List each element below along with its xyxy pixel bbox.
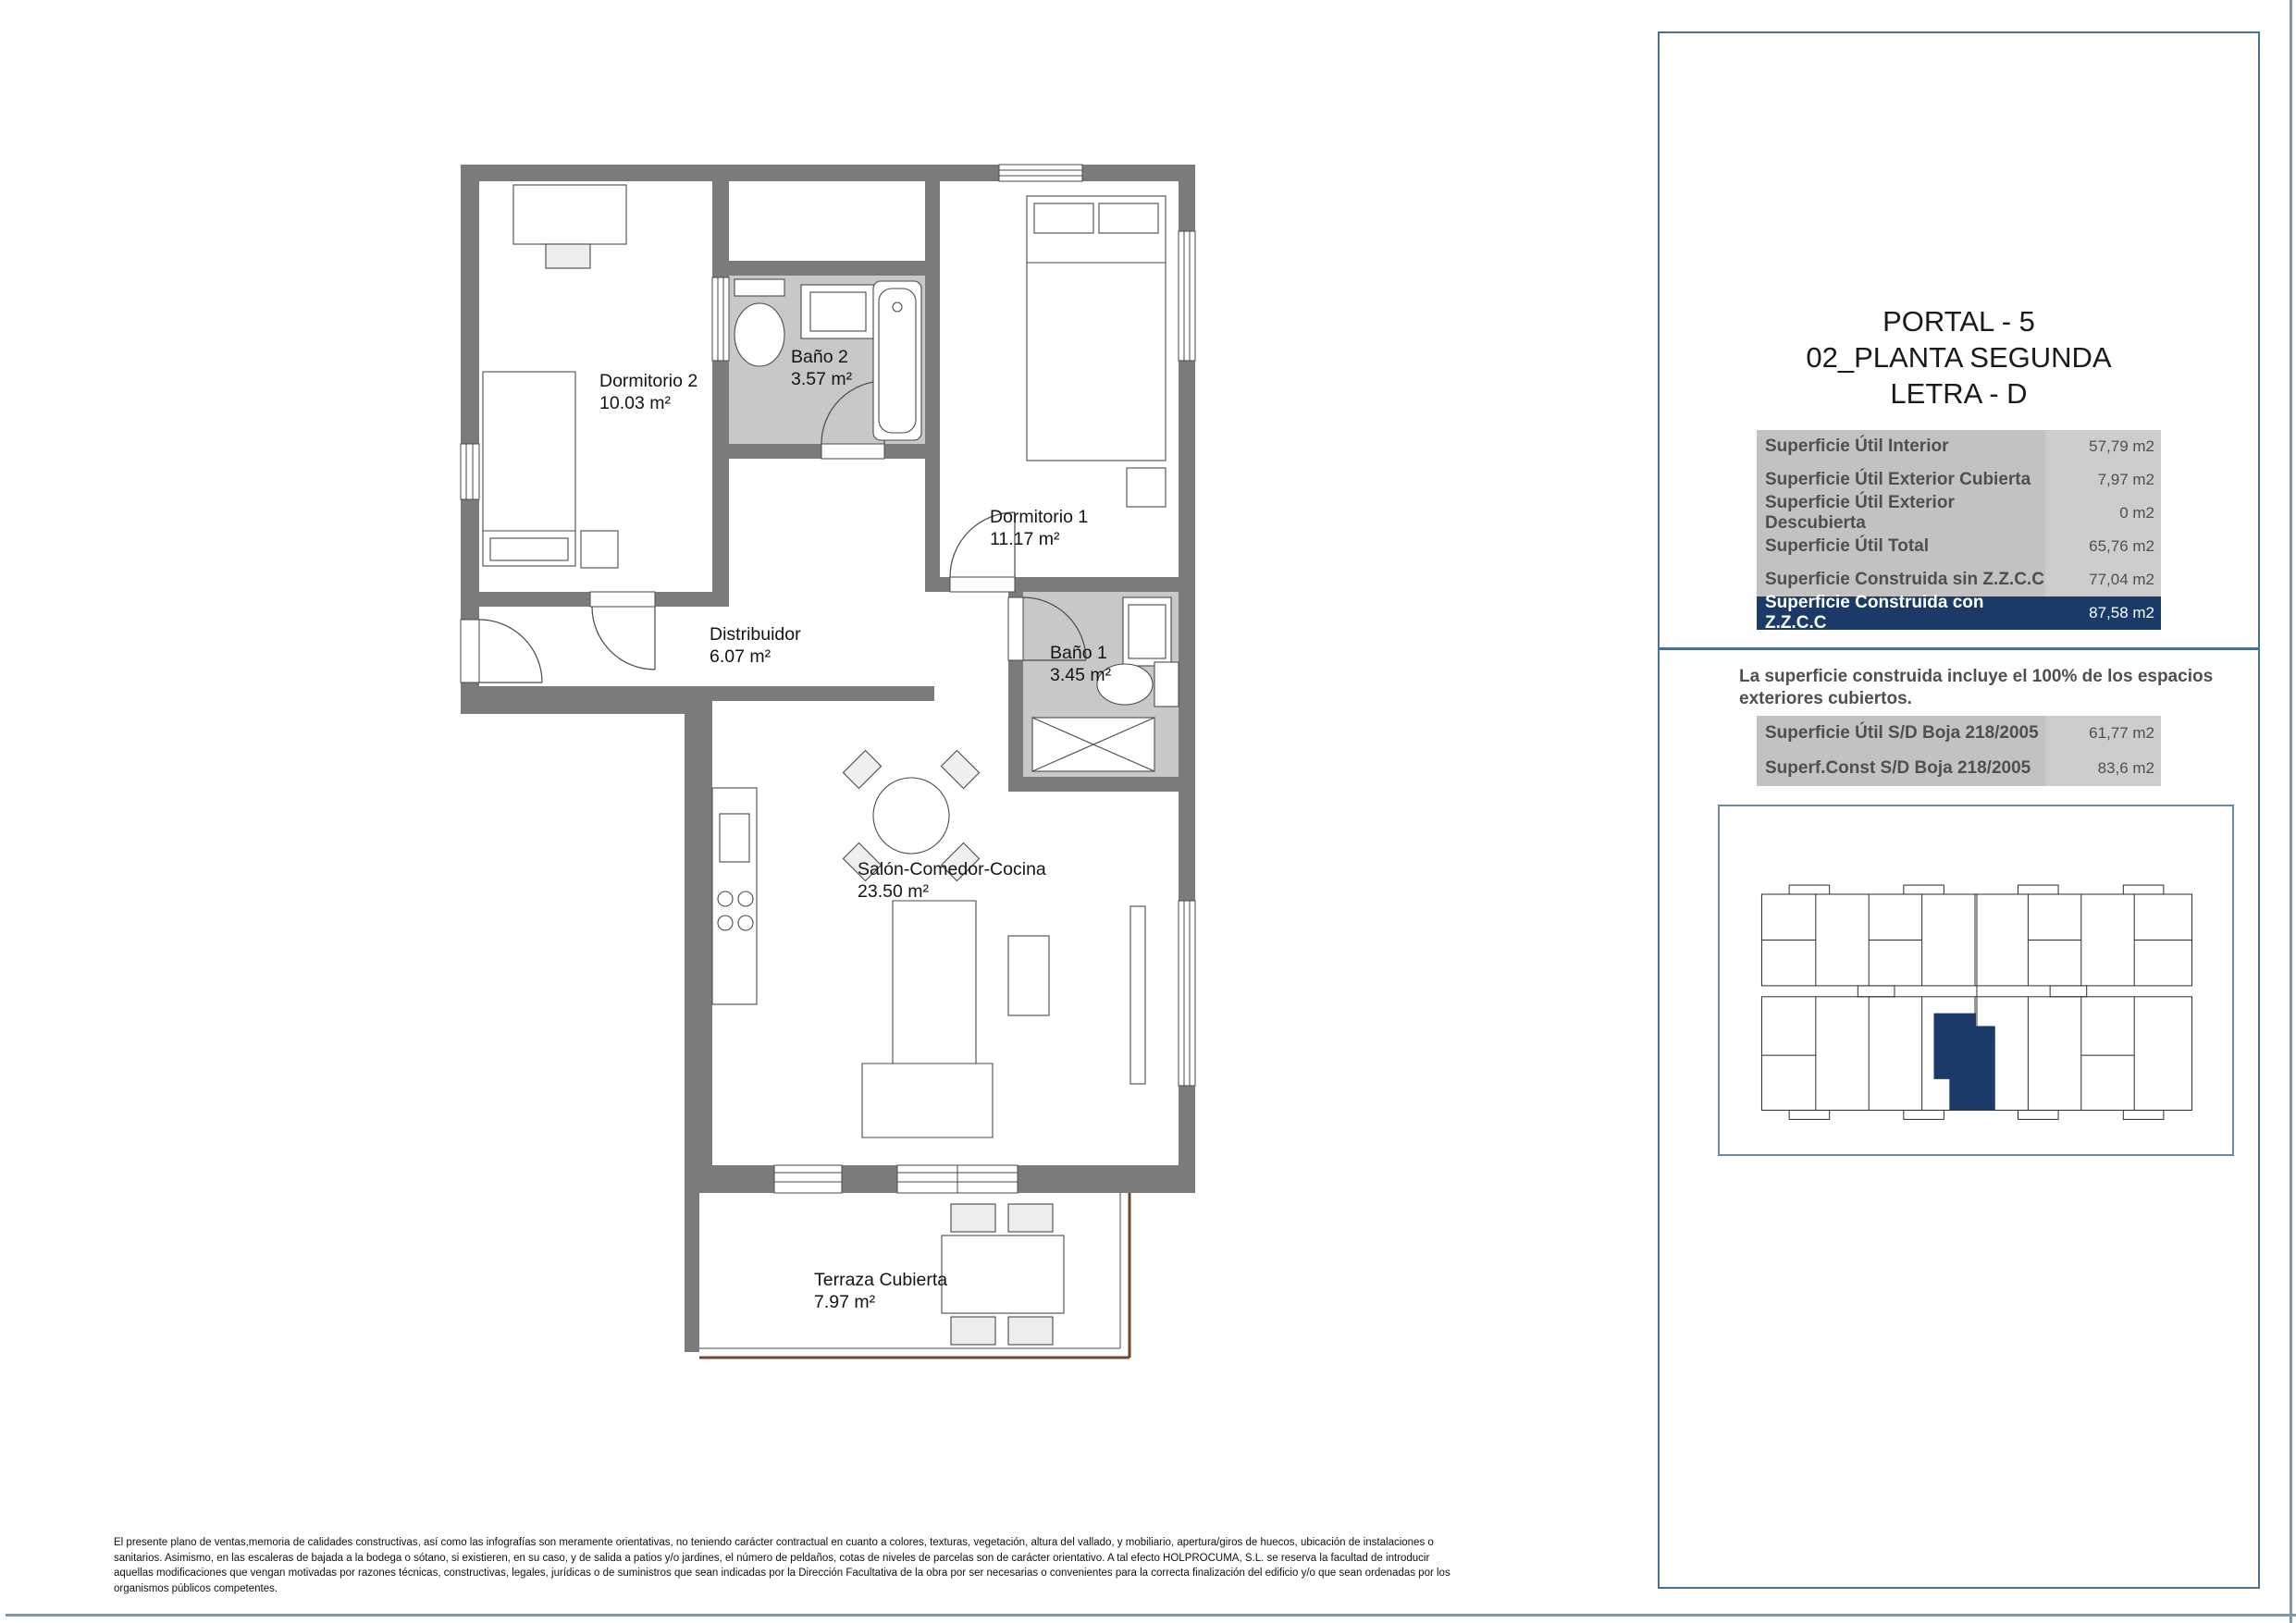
window-dorm1-top	[999, 165, 1082, 181]
table-row: Superficie Útil Total 65,76 m2	[1757, 530, 2161, 563]
row-label: Superficie Útil Interior	[1757, 430, 2045, 463]
room-area: 3.57 m²	[791, 369, 853, 389]
disclaimer-line: organismos públicos competentes.	[114, 1581, 1654, 1597]
title-planta: 02_PLANTA SEGUNDA	[1660, 339, 2258, 375]
room-name: Dormitorio 1	[990, 507, 1088, 527]
door-gap-bano2	[821, 444, 884, 459]
door-gap-dorm2	[590, 592, 655, 607]
entry-door-gap	[461, 620, 479, 682]
room-label-dormitorio2: Dormitorio 2 10.03 m²	[599, 371, 697, 413]
boja-table: Superficie Útil S/D Boja 218/2005 61,77 …	[1757, 716, 2161, 786]
disclaimer-line: aquellas modificaciones que vengan motiv…	[114, 1566, 1654, 1581]
room-area: 11.17 m²	[990, 529, 1060, 549]
bed2-symbol	[483, 372, 575, 566]
info-panel: PORTAL - 5 02_PLANTA SEGUNDA LETRA - D S…	[1658, 31, 2260, 1589]
room-label-terraza: Terraza Cubierta 7.97 m²	[814, 1270, 947, 1312]
table-row: Superficie Útil S/D Boja 218/2005 61,77 …	[1757, 716, 2161, 751]
row-label: Superficie Útil Exterior Cubierta	[1757, 463, 2045, 497]
window-dorm2-right	[712, 277, 729, 361]
room-area: 7.97 m²	[814, 1292, 876, 1312]
table-row: Superficie Útil Exterior Descubierta 0 m…	[1757, 497, 2161, 530]
room-label-distribuidor: Distribuidor 6.07 m²	[710, 624, 801, 667]
room-area: 23.50 m²	[858, 881, 929, 902]
room-name: Dormitorio 2	[599, 371, 697, 391]
room-area: 3.45 m²	[1050, 665, 1112, 685]
dorm2-door	[592, 607, 655, 670]
row-value: 0 m2	[2045, 497, 2161, 530]
nightstand-symbol	[581, 531, 618, 568]
keyplan-drawing	[1720, 806, 2232, 1154]
row-value: 87,58 m2	[2045, 596, 2161, 630]
toilet2-symbol	[734, 279, 784, 366]
window-salon-right	[1179, 901, 1195, 1086]
shower-symbol	[1032, 718, 1154, 771]
tv-unit-symbol	[1130, 906, 1145, 1084]
row-value: 83,6 m2	[2045, 751, 2161, 786]
door-gap-bano1	[1008, 597, 1023, 660]
row-value: 61,77 m2	[2045, 716, 2161, 751]
armchair-symbol	[1008, 936, 1049, 1015]
room-name: Terraza Cubierta	[814, 1270, 947, 1290]
table-row: Superficie Útil Interior 57,79 m2	[1757, 430, 2161, 463]
room-area: 10.03 m²	[599, 393, 671, 413]
page-frame-bottom	[6, 1614, 2296, 1617]
window-dorm1-right	[1179, 231, 1195, 361]
sink2-symbol	[801, 285, 875, 338]
surface-note: La superficie construida incluye el 100%…	[1739, 666, 2220, 710]
room-area: 6.07 m²	[710, 646, 772, 667]
window-left-slot	[461, 444, 479, 499]
room-label-salon: Salón-Comedor-Cocina 23.50 m²	[858, 859, 1046, 902]
disclaimer-line: sanitarios. Asimismo, en las escaleras d…	[114, 1551, 1654, 1567]
page-frame-right	[2290, 0, 2292, 1623]
table-row: Superf.Const S/D Boja 218/2005 83,6 m2	[1757, 751, 2161, 786]
door-gap-dorm1	[950, 577, 1015, 592]
kitchen-counter-symbol	[712, 788, 757, 1004]
nightstand-symbol	[1127, 468, 1166, 507]
row-value: 57,79 m2	[2045, 430, 2161, 463]
desk-chair-symbol	[546, 244, 590, 268]
title-portal: PORTAL - 5	[1660, 303, 2258, 339]
row-label: Superficie Útil S/D Boja 218/2005	[1757, 716, 2045, 751]
room-name: Salón-Comedor-Cocina	[858, 859, 1046, 879]
bathtub-symbol	[873, 281, 921, 440]
keyplan-box	[1718, 805, 2234, 1156]
room-name: Distribuidor	[710, 624, 801, 645]
disclaimer-line: El presente plano de ventas,memoria de c…	[114, 1535, 1654, 1551]
room-name: Baño 1	[1050, 643, 1107, 663]
sofa-symbol	[862, 901, 993, 1137]
sink1-symbol	[1123, 597, 1171, 666]
row-label: Superficie Construida con Z.Z.C.C	[1757, 596, 2045, 630]
table-row: Superficie Construida sin Z.Z.C.C 77,04 …	[1757, 563, 2161, 596]
row-value: 65,76 m2	[2045, 530, 2161, 563]
room-label-dormitorio1: Dormitorio 1 11.17 m²	[990, 507, 1088, 549]
row-label: Superf.Const S/D Boja 218/2005	[1757, 751, 2045, 786]
terrace-sliding-door-left	[774, 1165, 842, 1193]
bed1-symbol	[1027, 196, 1166, 461]
title-letra: LETRA - D	[1660, 375, 2258, 412]
table-row: Superficie Útil Exterior Cubierta 7,97 m…	[1757, 463, 2161, 497]
terrace-sliding-door-right	[897, 1165, 1018, 1193]
terrace-table-symbol	[942, 1204, 1064, 1345]
floor-plan: Dormitorio 2 10.03 m² Baño 2 3.57 m² Dor…	[435, 139, 1212, 1406]
legal-disclaimer: El presente plano de ventas,memoria de c…	[114, 1535, 1654, 1596]
desk-symbol	[513, 185, 626, 244]
row-label: Superficie Útil Exterior Descubierta	[1757, 497, 2045, 530]
row-value: 77,04 m2	[2045, 563, 2161, 596]
room-name: Baño 2	[791, 347, 848, 367]
row-label: Superficie Útil Total	[1757, 530, 2045, 563]
row-value: 7,97 m2	[2045, 463, 2161, 497]
page-title: PORTAL - 5 02_PLANTA SEGUNDA LETRA - D	[1660, 303, 2258, 412]
row-label: Superficie Construida sin Z.Z.C.C	[1757, 563, 2045, 596]
surface-table: Superficie Útil Interior 57,79 m2 Superf…	[1757, 430, 2161, 630]
table-row-highlighted: Superficie Construida con Z.Z.C.C 87,58 …	[1757, 596, 2161, 630]
entry-door	[479, 620, 542, 682]
keyplan-highlighted-unit	[1933, 1014, 1994, 1111]
separator-line	[1660, 647, 2258, 650]
